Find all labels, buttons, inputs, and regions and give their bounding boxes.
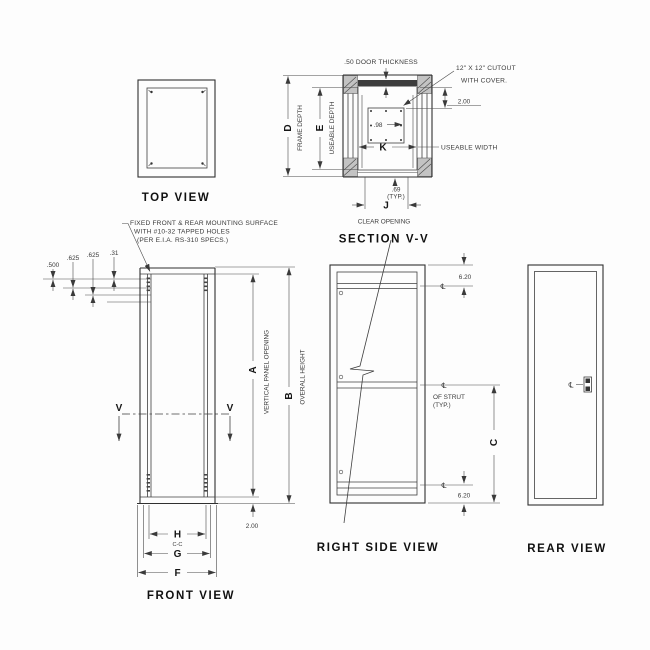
- dim-j-label: J: [383, 201, 389, 212]
- dim-h-label: H: [174, 530, 181, 541]
- dim-200-front-label: 2.00: [246, 523, 259, 530]
- cutout-note-line2: WITH COVER.: [461, 78, 507, 85]
- dim-a-label: A: [248, 366, 259, 373]
- centerline-symbol-top: ℄: [441, 282, 446, 291]
- section-cut-label-left: V: [116, 403, 123, 414]
- rail-offset-dims: .500 .625 .625 .31: [43, 250, 151, 307]
- dim-625b-label: .625: [87, 252, 100, 259]
- cutout-note-line1: 12" X 12" CUTOUT: [456, 65, 516, 72]
- rear-view: ℄ REAR VIEW: [527, 265, 607, 555]
- top-view-corner-ticks: [149, 90, 206, 166]
- dim-200-front: 2.00: [246, 504, 259, 530]
- dim-625a-label: .625: [67, 255, 80, 262]
- dim-200-section-label: 2.00: [458, 99, 471, 106]
- front-view-rails: [147, 274, 208, 497]
- dim-k: K USEABLE WIDTH: [359, 143, 497, 154]
- dim-c-label: C: [489, 439, 500, 446]
- dim-j-clear-opening: .69 (TYP.) J CLEAR OPENING: [352, 177, 421, 226]
- front-view: FIXED FRONT & REAR MOUNTING SURFACE WITH…: [43, 220, 307, 602]
- useable-width-label: USEABLE WIDTH: [441, 145, 497, 152]
- dim-69-typ-label: (TYP.): [387, 194, 405, 201]
- dim-g-label: G: [174, 549, 182, 560]
- front-view-outline: [137, 268, 218, 504]
- clear-opening-label: CLEAR OPENING: [358, 219, 411, 226]
- useable-depth-label: USEABLE DEPTH: [329, 101, 336, 154]
- strut-centerline-note: ℄ OF STRUT (TYP.): [420, 381, 500, 409]
- right-side-holes: [339, 291, 343, 474]
- cabinet-drawing-svg: TOP VIEW .50 DOOR THICKNESS: [0, 0, 650, 650]
- right-side-outer-outline: [330, 265, 425, 503]
- frame-depth-label: FRAME DEPTH: [297, 105, 304, 151]
- center-to-center-label: C-C: [173, 542, 183, 548]
- dim-620-top: ℄ 6.20: [420, 253, 473, 298]
- right-side-view: ℄ 6.20 ℄ OF STRUT (TYP.) C ℄ 6.20 RIG: [317, 240, 500, 554]
- dim-d-label: D: [283, 124, 294, 131]
- mounting-note-line3: (PER E.I.A. RS-310 SPECS.): [137, 237, 228, 244]
- vertical-panel-opening-label: VERTICAL PANEL OPENING: [264, 330, 271, 414]
- centerline-symbol-mid: ℄: [442, 381, 447, 390]
- dim-620-bottom-label: 6.20: [458, 493, 471, 500]
- dim-k-label: K: [379, 143, 387, 154]
- dim-g: G: [144, 549, 209, 560]
- dim-h: H C-C: [138, 505, 217, 577]
- dim-620-top-label: 6.20: [459, 274, 472, 281]
- front-view-title: FRONT VIEW: [147, 590, 235, 602]
- dim-31-label: .31: [110, 250, 119, 257]
- right-side-struts: [337, 284, 417, 489]
- dim-f: F: [138, 568, 215, 579]
- dim-a-panel-opening: A VERTICAL PANEL OPENING: [215, 274, 271, 497]
- section-vv: .50 DOOR THICKNESS 12" X 12" CUTOUT WITH…: [283, 59, 516, 246]
- dim-69-label: .69: [392, 187, 401, 194]
- right-side-view-title: RIGHT SIDE VIEW: [317, 542, 439, 554]
- rear-view-title: REAR VIEW: [527, 543, 607, 555]
- top-view-title: TOP VIEW: [142, 192, 211, 204]
- dim-500-label: .500: [47, 262, 60, 269]
- dim-620-bottom: ℄ 6.20: [420, 471, 473, 516]
- dim-f-label: F: [174, 568, 180, 579]
- mounting-note-line2: WITH #10-32 TAPPED HOLES: [134, 229, 230, 236]
- centerline-symbol-latch: ℄: [569, 381, 574, 390]
- section-cut-label-right: V: [227, 403, 234, 414]
- top-view: TOP VIEW: [138, 80, 215, 204]
- engineering-drawing-page: TOP VIEW .50 DOOR THICKNESS: [0, 0, 650, 650]
- dim-e-label: E: [315, 124, 326, 131]
- rear-view-inner-outline: [535, 272, 597, 499]
- section-cut-line: V V: [116, 403, 234, 441]
- section-vv-title: SECTION V-V: [339, 234, 429, 246]
- top-view-inner-outline: [147, 88, 207, 168]
- mounting-note-line1: FIXED FRONT & REAR MOUNTING SURFACE: [130, 220, 278, 227]
- top-view-corner-holes: [150, 91, 203, 165]
- rear-latch: ℄: [569, 377, 592, 392]
- dim-098-label: .98: [374, 122, 383, 129]
- of-strut-label: OF STRUT: [433, 394, 465, 401]
- top-view-outer-outline: [138, 80, 215, 177]
- section-corner-extrusions: [344, 76, 432, 177]
- dim-b-label: B: [284, 392, 295, 399]
- right-side-inner-outline: [337, 272, 417, 495]
- dim-e-useable-depth: E USEABLE DEPTH: [312, 88, 358, 170]
- door-thickness-note: .50 DOOR THICKNESS: [344, 59, 418, 66]
- overall-height-label: OVERALL HEIGHT: [300, 349, 307, 404]
- break-line: [344, 240, 391, 523]
- section-door: [358, 80, 417, 87]
- centerline-symbol-bottom: ℄: [442, 481, 447, 490]
- of-strut-typ-label: (TYP.): [433, 402, 451, 409]
- dim-b-overall-height: B OVERALL HEIGHT: [215, 267, 307, 504]
